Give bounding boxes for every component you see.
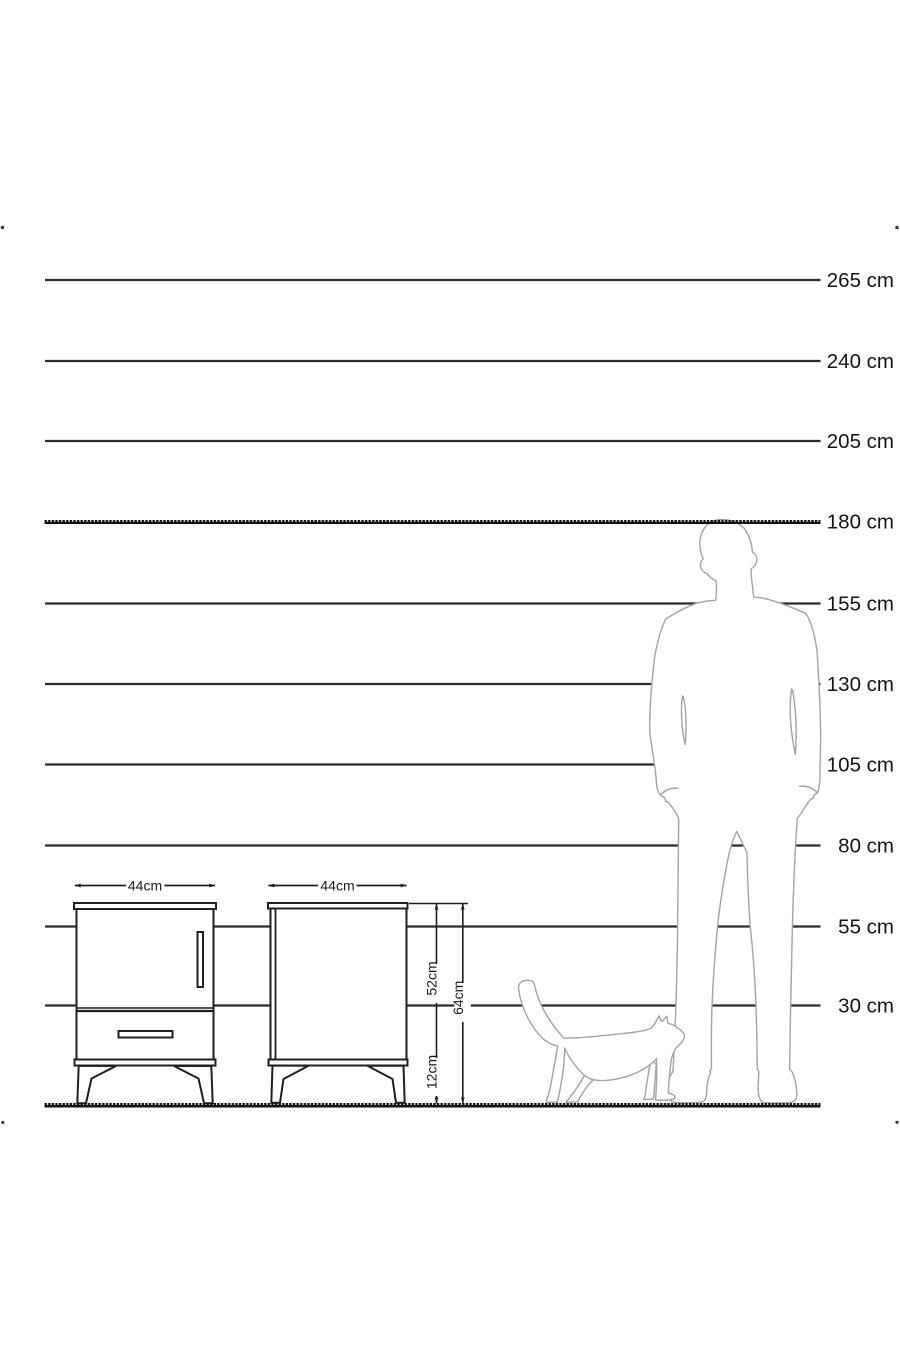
svg-text:155 cm: 155 cm xyxy=(827,593,894,616)
svg-text:64cm: 64cm xyxy=(450,981,466,1015)
svg-text:265 cm: 265 cm xyxy=(827,269,894,292)
svg-text:80 cm: 80 cm xyxy=(838,835,894,858)
svg-text:55 cm: 55 cm xyxy=(838,916,894,939)
svg-text:205 cm: 205 cm xyxy=(827,430,894,453)
svg-text:44cm: 44cm xyxy=(128,878,162,894)
svg-text:52cm: 52cm xyxy=(424,961,440,995)
svg-text:44cm: 44cm xyxy=(320,878,354,894)
svg-text:30 cm: 30 cm xyxy=(838,995,894,1018)
svg-text:12cm: 12cm xyxy=(424,1055,440,1089)
svg-text:130 cm: 130 cm xyxy=(827,673,894,696)
svg-text:180 cm: 180 cm xyxy=(827,511,894,534)
svg-text:240 cm: 240 cm xyxy=(827,350,894,373)
svg-text:105 cm: 105 cm xyxy=(827,754,894,777)
